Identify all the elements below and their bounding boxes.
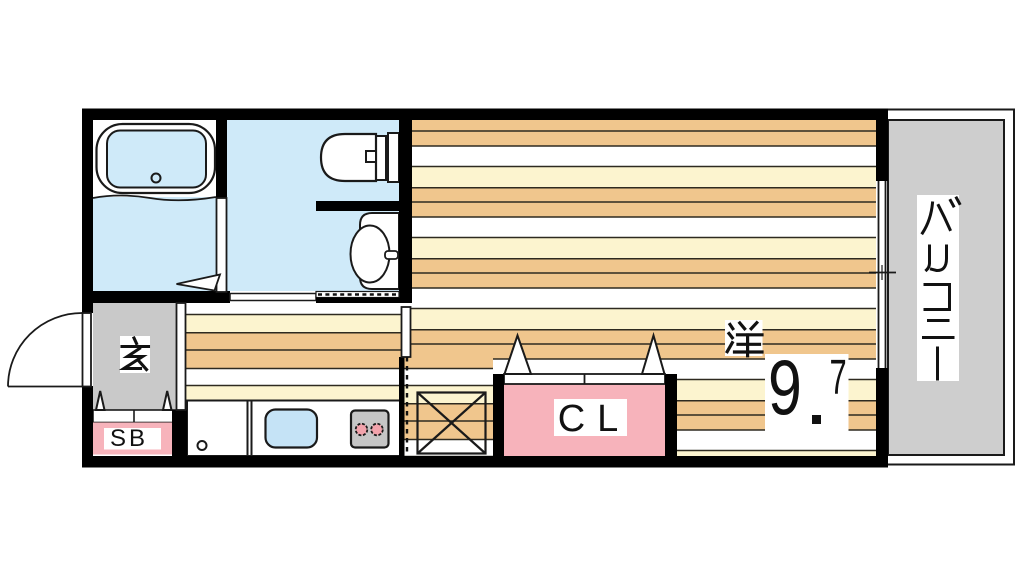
svg-text:7: 7 [830, 349, 847, 404]
svg-text:CL: CL [558, 398, 631, 440]
svg-text:9: 9 [768, 344, 802, 431]
svg-text:SB: SB [110, 425, 148, 452]
